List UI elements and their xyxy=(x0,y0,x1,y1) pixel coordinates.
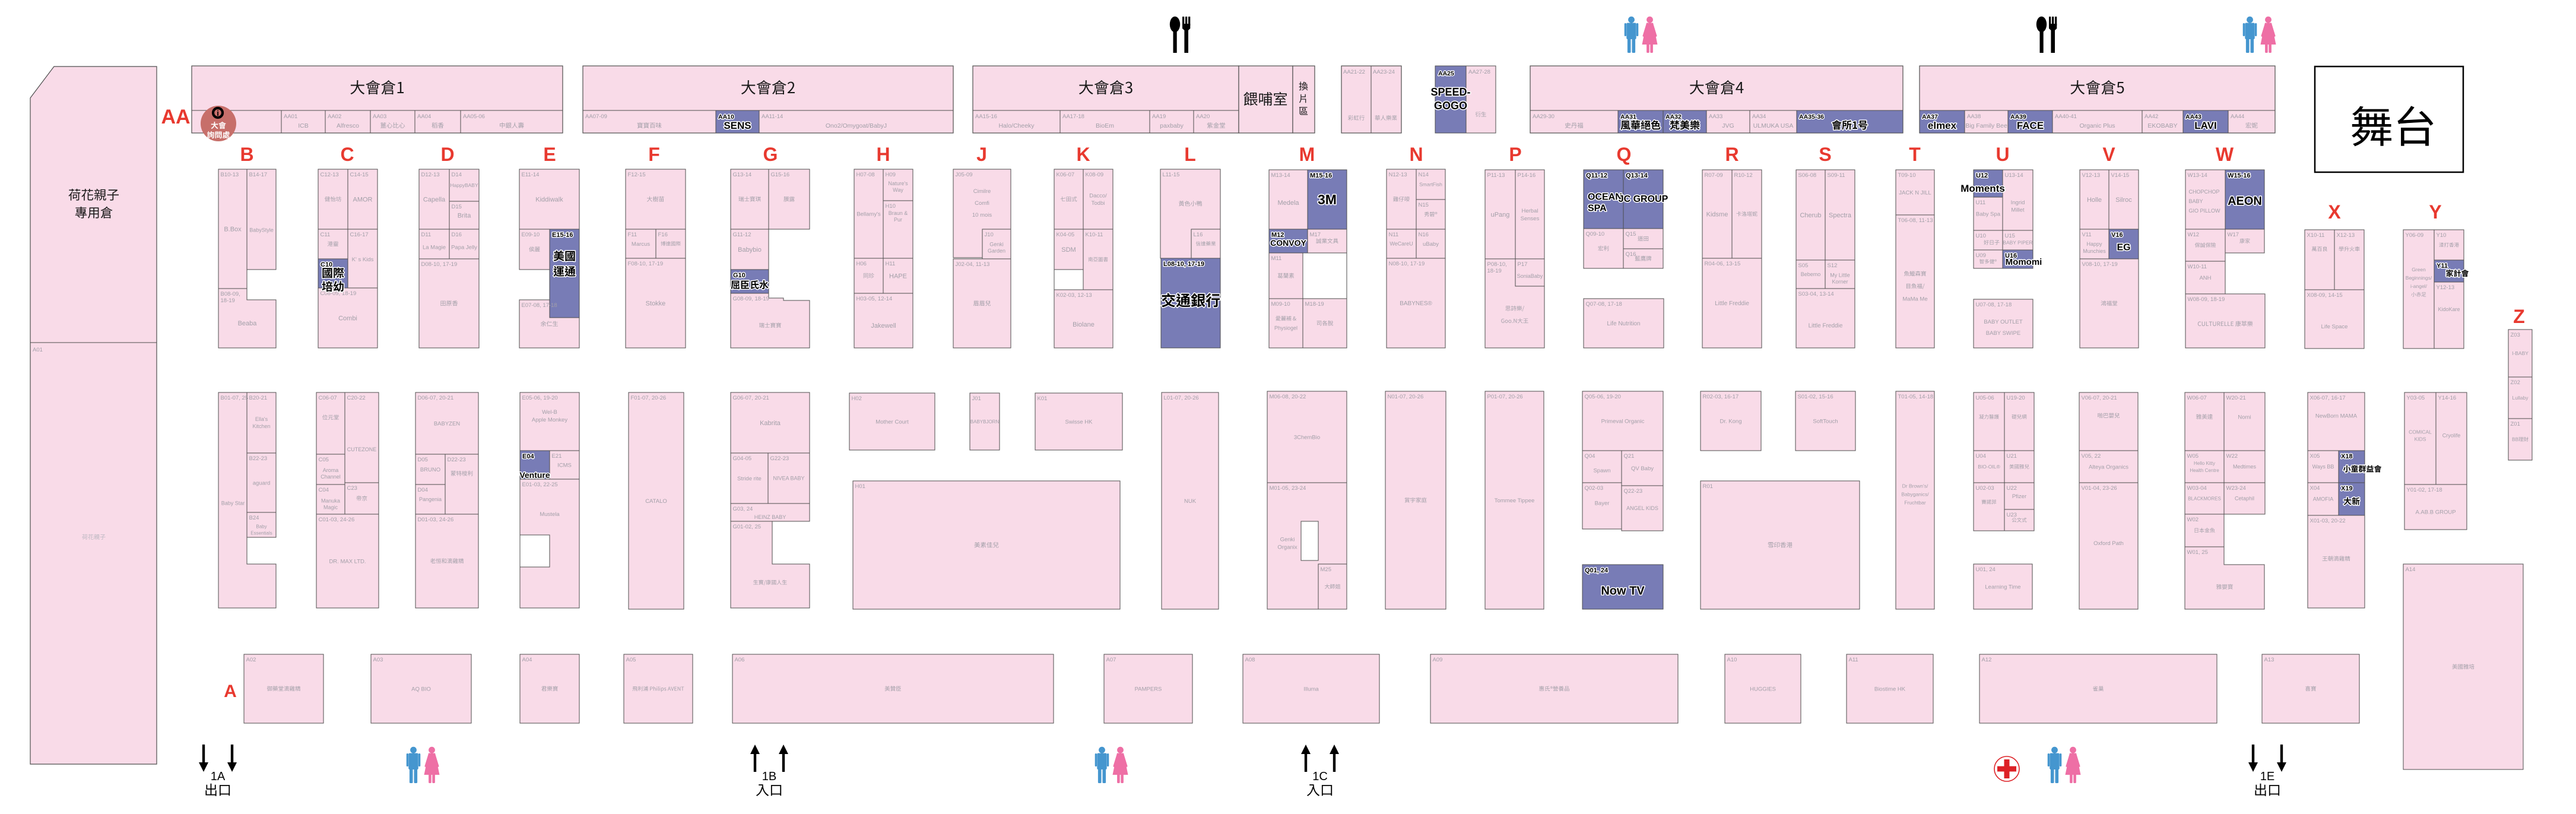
svg-text:18-19: 18-19 xyxy=(221,297,235,304)
svg-text:U: U xyxy=(1996,144,2009,165)
svg-text:Pfizer: Pfizer xyxy=(2012,493,2026,500)
svg-text:Apple Monkey: Apple Monkey xyxy=(532,417,567,423)
svg-text:W03-04: W03-04 xyxy=(2187,485,2207,492)
svg-text:R02-03, 16-17: R02-03, 16-17 xyxy=(1703,394,1739,400)
svg-text:X: X xyxy=(2328,201,2341,223)
svg-text:BioEm: BioEm xyxy=(1096,122,1114,129)
svg-text:i: i xyxy=(217,109,219,118)
svg-text:A08: A08 xyxy=(1245,657,1255,663)
svg-text:X19: X19 xyxy=(2341,485,2353,492)
svg-text:Dacco/: Dacco/ xyxy=(1089,193,1107,199)
svg-text:AMOR: AMOR xyxy=(353,196,373,203)
svg-text:BabyStyle: BabyStyle xyxy=(249,227,274,233)
svg-text:Ella's: Ella's xyxy=(255,416,268,422)
svg-text:B08-09,: B08-09, xyxy=(221,291,240,297)
svg-text:A14: A14 xyxy=(2406,566,2416,573)
svg-text:Spectra: Spectra xyxy=(1829,212,1852,219)
svg-text:S01-02, 15-16: S01-02, 15-16 xyxy=(1798,394,1833,400)
svg-text:U11: U11 xyxy=(1976,199,1986,206)
svg-text:M15-16: M15-16 xyxy=(1310,172,1332,179)
svg-text:G11-12: G11-12 xyxy=(733,232,751,238)
svg-text:AA38: AA38 xyxy=(1967,113,1981,120)
svg-text:D08-10, 17-19: D08-10, 17-19 xyxy=(421,261,458,268)
svg-text:Y12-13: Y12-13 xyxy=(2437,284,2455,291)
svg-text:T: T xyxy=(1909,144,1921,165)
svg-text:K: K xyxy=(1076,144,1090,165)
svg-text:Learning Time: Learning Time xyxy=(1985,584,2020,590)
svg-text:Spawn: Spawn xyxy=(1593,467,1610,474)
svg-text:AA32: AA32 xyxy=(1665,113,1682,121)
svg-text:Baby Star: Baby Star xyxy=(221,501,245,506)
svg-text:W06-07: W06-07 xyxy=(2187,395,2207,401)
svg-text:Alteya Organics: Alteya Organics xyxy=(2089,464,2128,470)
svg-text:A10: A10 xyxy=(1727,657,1737,663)
svg-text:Wel-B: Wel-B xyxy=(542,409,557,416)
svg-text:N12-13: N12-13 xyxy=(1389,172,1407,178)
svg-text:A: A xyxy=(224,682,237,701)
svg-text:AA34: AA34 xyxy=(1752,113,1766,120)
svg-text:Z: Z xyxy=(2513,306,2525,327)
svg-text:M06-08, 20-22: M06-08, 20-22 xyxy=(1270,394,1306,400)
svg-text:C14-15: C14-15 xyxy=(350,172,369,178)
svg-text:K06-07: K06-07 xyxy=(1057,172,1075,178)
svg-text:Life Nutrition: Life Nutrition xyxy=(1607,321,1640,327)
svg-text:EKOBABY: EKOBABY xyxy=(2147,122,2177,129)
svg-text:Q01, 24: Q01, 24 xyxy=(1585,567,1609,574)
svg-text:3M: 3M xyxy=(1318,192,1337,207)
svg-text:U12: U12 xyxy=(1976,172,1988,179)
svg-text:X06-07, 16-17: X06-07, 16-17 xyxy=(2310,395,2346,401)
svg-text:Millet: Millet xyxy=(2011,207,2025,214)
svg-text:H10: H10 xyxy=(886,203,896,210)
svg-text:Venture: Venture xyxy=(519,470,550,480)
svg-text:Biolane: Biolane xyxy=(1073,321,1095,328)
svg-text:D11: D11 xyxy=(421,232,432,238)
svg-text:Y14-16: Y14-16 xyxy=(2438,395,2457,401)
svg-text:T06-08, 11-13: T06-08, 11-13 xyxy=(1898,217,1933,224)
svg-text:BRUNO: BRUNO xyxy=(420,467,440,473)
svg-text:Fruchtbar: Fruchtbar xyxy=(1904,500,1926,506)
svg-text:A02: A02 xyxy=(246,657,256,663)
svg-text:SPEED-: SPEED- xyxy=(1430,86,1470,98)
svg-text:Aroma: Aroma xyxy=(323,467,339,473)
svg-text:X05: X05 xyxy=(2310,453,2320,460)
svg-text:Korner: Korner xyxy=(1832,279,1848,285)
svg-text:U05-06: U05-06 xyxy=(1976,395,1994,401)
svg-text:D06-07, 20-21: D06-07, 20-21 xyxy=(418,395,454,401)
svg-text:X10-11: X10-11 xyxy=(2307,232,2325,239)
svg-text:SPA: SPA xyxy=(1588,204,1607,214)
svg-text:C01-03, 24-26: C01-03, 24-26 xyxy=(319,517,355,523)
svg-text:A06: A06 xyxy=(735,657,745,663)
svg-text:M25: M25 xyxy=(1321,566,1331,573)
svg-text:Nomi: Nomi xyxy=(2238,414,2251,420)
svg-text:S06-08: S06-08 xyxy=(1798,172,1817,179)
svg-text:Q09-10: Q09-10 xyxy=(1586,231,1605,237)
svg-text:Y06-09: Y06-09 xyxy=(2406,232,2424,239)
svg-text:E15-16: E15-16 xyxy=(552,232,573,239)
svg-text:Swisse HK: Swisse HK xyxy=(1065,419,1093,425)
svg-text:Hello Kitty: Hello Kitty xyxy=(2194,461,2215,466)
svg-text:Cimilre: Cimilre xyxy=(973,188,991,195)
svg-text:1E: 1E xyxy=(2260,770,2274,783)
svg-text:F08-10, 17-19: F08-10, 17-19 xyxy=(628,261,664,267)
svg-text:E01-03, 22-25: E01-03, 22-25 xyxy=(522,482,558,488)
svg-text:Munchies: Munchies xyxy=(2083,248,2106,254)
svg-text:Combi: Combi xyxy=(338,315,357,322)
svg-text:WeCareU: WeCareU xyxy=(1389,241,1413,247)
svg-text:1C: 1C xyxy=(1312,770,1328,783)
svg-text:Medela: Medela xyxy=(1277,199,1299,207)
svg-text:FACE: FACE xyxy=(2017,120,2044,131)
svg-text:U02-03: U02-03 xyxy=(1976,485,1994,492)
svg-text:E05-06, 19-20: E05-06, 19-20 xyxy=(522,395,558,401)
svg-text:K10-11: K10-11 xyxy=(1086,232,1103,238)
svg-text:M12: M12 xyxy=(1271,232,1284,239)
svg-text:L16: L16 xyxy=(1194,232,1203,238)
svg-text:SDM: SDM xyxy=(1061,246,1076,254)
svg-text:Beaba: Beaba xyxy=(238,320,258,327)
svg-text:S12: S12 xyxy=(1828,262,1838,269)
svg-text:X01-03, 20-22: X01-03, 20-22 xyxy=(2310,518,2346,524)
svg-text:ANGEL KIDS: ANGEL KIDS xyxy=(1626,505,1658,511)
svg-text:Q05-06, 19-20: Q05-06, 19-20 xyxy=(1585,394,1621,400)
svg-text:Ingrid: Ingrid xyxy=(2011,199,2025,206)
svg-text:Q04: Q04 xyxy=(1585,453,1595,460)
svg-text:R01: R01 xyxy=(1703,483,1713,490)
svg-text:3ChemBio: 3ChemBio xyxy=(1294,434,1320,441)
svg-text:C05: C05 xyxy=(319,457,329,463)
svg-text:Senses: Senses xyxy=(1521,216,1540,222)
svg-text:Capella: Capella xyxy=(423,196,446,203)
svg-text:M17: M17 xyxy=(1310,232,1321,238)
svg-text:Stride rite: Stride rite xyxy=(737,476,762,482)
svg-text:G06-07, 20-21: G06-07, 20-21 xyxy=(733,395,769,401)
svg-text:V16: V16 xyxy=(2111,232,2123,239)
svg-text:Jakewell: Jakewell xyxy=(871,322,896,330)
svg-text:B10-13: B10-13 xyxy=(221,172,239,178)
svg-text:AA03: AA03 xyxy=(373,113,386,120)
svg-text:B14-17: B14-17 xyxy=(249,172,268,178)
svg-text:AA33: AA33 xyxy=(1709,113,1722,120)
svg-text:CONVOY: CONVOY xyxy=(1270,238,1306,248)
svg-text:W20-21: W20-21 xyxy=(2226,395,2246,401)
svg-text:Genki: Genki xyxy=(1280,536,1295,543)
svg-text:A09: A09 xyxy=(1433,657,1443,663)
svg-text:Dr. Kong: Dr. Kong xyxy=(1720,418,1742,425)
svg-text:CUTEZONE: CUTEZONE xyxy=(347,446,377,452)
svg-text:paxbaby: paxbaby xyxy=(1160,122,1184,129)
svg-text:D01-03, 24-26: D01-03, 24-26 xyxy=(418,517,454,523)
svg-text:U19-20: U19-20 xyxy=(2007,395,2025,401)
svg-text:OCEAN: OCEAN xyxy=(1588,192,1622,202)
svg-text:G04-05: G04-05 xyxy=(733,455,752,462)
svg-text:Garden: Garden xyxy=(988,248,1005,254)
svg-text:E09-10: E09-10 xyxy=(522,232,540,238)
svg-text:Kitchen: Kitchen xyxy=(252,423,270,429)
svg-text:S09-11: S09-11 xyxy=(1828,172,1845,179)
svg-text:B.Box: B.Box xyxy=(224,226,242,233)
svg-text:R04-06, 13-15: R04-06, 13-15 xyxy=(1705,261,1741,267)
svg-text:SoniaBaby: SoniaBaby xyxy=(1517,273,1543,279)
svg-text:B22-23: B22-23 xyxy=(249,455,268,462)
svg-text:Cherub: Cherub xyxy=(1800,212,1821,219)
svg-text:AQ BIO: AQ BIO xyxy=(411,686,431,692)
svg-text:AA10: AA10 xyxy=(718,113,734,121)
svg-text:BABY OUTLET: BABY OUTLET xyxy=(1984,319,2022,325)
svg-text:N16: N16 xyxy=(1419,232,1429,238)
svg-text:Ono2/Omygoat/BabyJ: Ono2/Omygoat/BabyJ xyxy=(826,122,887,129)
svg-text:1B: 1B xyxy=(762,770,776,783)
svg-text:U13-14: U13-14 xyxy=(2005,172,2023,179)
svg-text:AEON: AEON xyxy=(2228,195,2262,208)
svg-text:Halo/Cheeky: Halo/Cheeky xyxy=(998,122,1035,129)
svg-text:C10: C10 xyxy=(321,261,332,268)
svg-text:U16: U16 xyxy=(2005,252,2017,259)
svg-text:W08-09, 18-19: W08-09, 18-19 xyxy=(2188,296,2225,303)
svg-text:AA17-18: AA17-18 xyxy=(1062,113,1084,120)
svg-text:DR. MAX LTD.: DR. MAX LTD. xyxy=(329,558,366,565)
svg-text:G03, 24: G03, 24 xyxy=(733,506,753,512)
svg-text:Cetaphil: Cetaphil xyxy=(2235,496,2254,502)
svg-text:Baby: Baby xyxy=(256,524,267,529)
svg-text:elmex: elmex xyxy=(1928,120,1957,131)
svg-text:ANH: ANH xyxy=(2199,275,2211,281)
svg-text:A12: A12 xyxy=(1982,657,1992,663)
svg-text:AA31: AA31 xyxy=(1620,113,1636,121)
svg-text:Channel: Channel xyxy=(321,474,341,480)
svg-text:i-angel/: i-angel/ xyxy=(2410,283,2428,289)
svg-text:C23: C23 xyxy=(347,485,357,492)
svg-text:AA11-14: AA11-14 xyxy=(762,113,783,120)
svg-text:D04: D04 xyxy=(418,487,428,493)
svg-text:Q: Q xyxy=(1617,144,1632,165)
svg-text:A05: A05 xyxy=(626,657,636,663)
svg-text:H07-08: H07-08 xyxy=(856,172,875,178)
svg-text:Herbal: Herbal xyxy=(1522,208,1538,214)
svg-text:HUGGIES: HUGGIES xyxy=(1750,686,1776,692)
svg-text:G08-09, 18-19: G08-09, 18-19 xyxy=(733,296,769,302)
svg-text:Q11-12: Q11-12 xyxy=(1586,172,1607,179)
svg-text:Kabrita: Kabrita xyxy=(760,420,781,427)
svg-text:H: H xyxy=(876,144,890,165)
svg-text:I-BABY: I-BABY xyxy=(2512,350,2529,356)
svg-text:J05-09: J05-09 xyxy=(956,172,973,178)
svg-text:A13: A13 xyxy=(2264,657,2274,663)
svg-text:D12-13: D12-13 xyxy=(421,172,440,178)
svg-text:Dr Brown's/: Dr Brown's/ xyxy=(1902,483,1928,489)
svg-text:E21: E21 xyxy=(552,453,562,460)
svg-text:A11: A11 xyxy=(1849,657,1858,663)
svg-text:Organic Plus: Organic Plus xyxy=(2079,122,2115,129)
svg-text:J10: J10 xyxy=(985,232,994,238)
svg-text:Y: Y xyxy=(2429,201,2441,223)
svg-text:BIO-OIL®: BIO-OIL® xyxy=(1978,464,2000,470)
svg-text:BABYBJORN: BABYBJORN xyxy=(970,419,1000,425)
svg-text:U01, 24: U01, 24 xyxy=(1976,566,1996,573)
svg-text:A.AB.B GROUP: A.AB.B GROUP xyxy=(2415,509,2456,515)
svg-text:Silroc: Silroc xyxy=(2115,197,2132,204)
svg-text:P: P xyxy=(1509,144,1521,165)
svg-text:U15: U15 xyxy=(2005,233,2015,239)
svg-text:Magic: Magic xyxy=(323,505,338,511)
svg-text:AA42: AA42 xyxy=(2144,113,2158,120)
svg-text:X04: X04 xyxy=(2310,485,2320,492)
svg-text:H09: H09 xyxy=(886,172,896,178)
svg-text:BABY: BABY xyxy=(2189,198,2203,204)
svg-text:ICB: ICB xyxy=(298,122,309,129)
svg-text:K' s Kids: K' s Kids xyxy=(352,256,374,263)
svg-text:AA25: AA25 xyxy=(1438,70,1454,77)
svg-text:Now TV: Now TV xyxy=(1601,585,1645,598)
svg-text:KidoKare: KidoKare xyxy=(2438,306,2460,312)
svg-text:H01: H01 xyxy=(855,483,865,490)
svg-text:AA21-22: AA21-22 xyxy=(1343,69,1365,75)
svg-text:K01: K01 xyxy=(1038,395,1048,402)
svg-text:W22: W22 xyxy=(2226,453,2238,460)
svg-text:P01-07, 20-26: P01-07, 20-26 xyxy=(1487,394,1523,400)
svg-text:M: M xyxy=(1299,144,1315,165)
svg-text:D15: D15 xyxy=(452,204,462,210)
svg-text:C06-07: C06-07 xyxy=(319,395,337,401)
svg-text:Q16: Q16 xyxy=(1626,251,1636,258)
svg-text:Genki: Genki xyxy=(989,242,1004,248)
svg-text:BABY SWIPE: BABY SWIPE xyxy=(1986,330,2020,337)
svg-text:K04-05: K04-05 xyxy=(1057,232,1075,238)
svg-text:W15-16: W15-16 xyxy=(2228,172,2251,179)
svg-text:V12-13: V12-13 xyxy=(2082,172,2101,179)
svg-text:D14: D14 xyxy=(452,172,462,178)
svg-text:AMOFIA: AMOFIA xyxy=(2313,496,2334,502)
svg-text:N: N xyxy=(1409,144,1423,165)
svg-text:R10-12: R10-12 xyxy=(1734,172,1753,179)
svg-text:L11-15: L11-15 xyxy=(1163,172,1180,178)
svg-text:Comfi: Comfi xyxy=(975,200,989,207)
svg-text:K08-09: K08-09 xyxy=(1086,172,1104,178)
svg-text:F11: F11 xyxy=(628,232,637,238)
svg-text:B01-07, 25: B01-07, 25 xyxy=(221,395,248,401)
svg-text:A04: A04 xyxy=(522,657,532,663)
svg-text:E: E xyxy=(543,144,556,165)
svg-text:AA: AA xyxy=(161,106,190,128)
svg-text:Baby Spa: Baby Spa xyxy=(1976,211,2001,217)
svg-text:Cryolife: Cryolife xyxy=(2442,433,2461,439)
svg-text:Z02: Z02 xyxy=(2511,379,2520,386)
svg-text:Babyganics/: Babyganics/ xyxy=(1901,492,1929,498)
svg-text:BABY PIPER: BABY PIPER xyxy=(2003,240,2032,246)
svg-text:N11: N11 xyxy=(1389,232,1399,238)
svg-text:Marcus: Marcus xyxy=(632,241,650,248)
svg-text:SENS: SENS xyxy=(724,120,751,131)
svg-text:Manuka: Manuka xyxy=(321,498,340,504)
svg-text:Pangenia: Pangenia xyxy=(419,496,442,502)
svg-text:AA39: AA39 xyxy=(2010,113,2026,121)
svg-text:P14-16: P14-16 xyxy=(1518,172,1536,179)
svg-text:uPang: uPang xyxy=(1491,211,1510,218)
svg-text:D05: D05 xyxy=(418,457,428,463)
svg-text:Stokke: Stokke xyxy=(646,300,666,307)
svg-text:X18: X18 xyxy=(2341,453,2353,460)
svg-text:AA23-24: AA23-24 xyxy=(1373,69,1395,75)
svg-text:Y10: Y10 xyxy=(2437,232,2447,239)
svg-text:Little Freddie: Little Freddie xyxy=(1809,323,1843,330)
svg-text:W13-14: W13-14 xyxy=(2188,172,2207,179)
svg-text:W17: W17 xyxy=(2228,232,2239,238)
svg-text:W12: W12 xyxy=(2188,232,2200,238)
svg-text:C20-22: C20-22 xyxy=(347,395,366,401)
svg-text:Nature's: Nature's xyxy=(888,180,908,186)
svg-text:C11: C11 xyxy=(321,232,331,238)
svg-text:D16: D16 xyxy=(452,232,462,238)
svg-text:Little Freddie: Little Freddie xyxy=(1715,300,1749,307)
svg-text:J02-04, 11-13: J02-04, 11-13 xyxy=(956,261,990,268)
svg-text:A03: A03 xyxy=(373,657,383,663)
svg-text:Alfresco: Alfresco xyxy=(337,122,359,129)
svg-text:M09-10: M09-10 xyxy=(1271,301,1290,308)
svg-text:L01-07, 20-26: L01-07, 20-26 xyxy=(1164,395,1199,401)
svg-text:U07-08, 17-18: U07-08, 17-18 xyxy=(1976,302,2012,308)
svg-text:V: V xyxy=(2102,144,2115,165)
svg-text:HAPE: HAPE xyxy=(889,273,907,280)
svg-text:H06: H06 xyxy=(856,261,867,267)
svg-text:L: L xyxy=(1184,144,1196,165)
svg-text:Ways BB: Ways BB xyxy=(2312,464,2334,470)
svg-text:CHOPCHOP: CHOPCHOP xyxy=(2189,189,2220,195)
svg-text:1A: 1A xyxy=(211,770,226,783)
svg-text:C: C xyxy=(340,144,354,165)
svg-text:R: R xyxy=(1725,144,1739,165)
svg-text:V01-04, 23-26: V01-04, 23-26 xyxy=(2082,485,2117,492)
svg-text:K02-03, 12-13: K02-03, 12-13 xyxy=(1057,292,1092,299)
svg-text:HappyBABY: HappyBABY xyxy=(450,182,478,188)
svg-text:Physiogel: Physiogel xyxy=(1274,325,1297,331)
svg-text:Z03: Z03 xyxy=(2511,332,2520,338)
svg-text:My Little: My Little xyxy=(1830,273,1850,278)
svg-text:H02: H02 xyxy=(852,395,862,402)
svg-text:E04: E04 xyxy=(522,453,534,460)
svg-text:D: D xyxy=(440,144,454,165)
svg-text:S03-04, 13-14: S03-04, 13-14 xyxy=(1798,291,1834,297)
svg-text:G01-02, 25: G01-02, 25 xyxy=(733,524,762,530)
svg-text:Way: Way xyxy=(893,187,903,193)
svg-text:T01-05, 14-18: T01-05, 14-18 xyxy=(1898,394,1934,400)
svg-text:X12-13: X12-13 xyxy=(2337,232,2355,239)
svg-text:Happy: Happy xyxy=(2086,241,2102,247)
svg-text:Y11: Y11 xyxy=(2437,262,2448,270)
svg-text:F16: F16 xyxy=(658,232,668,238)
svg-text:Primeval Organic: Primeval Organic xyxy=(1601,418,1645,425)
svg-text:AA05-06: AA05-06 xyxy=(463,113,485,120)
svg-text:uBaby: uBaby xyxy=(1423,241,1439,248)
svg-text:Q02-03: Q02-03 xyxy=(1585,485,1604,492)
svg-text:Q13-14: Q13-14 xyxy=(1626,172,1648,179)
svg-text:V14-15: V14-15 xyxy=(2111,172,2130,179)
svg-text:KIDS: KIDS xyxy=(2415,436,2426,442)
svg-text:JC GROUP: JC GROUP xyxy=(1619,194,1668,204)
svg-text:QV Baby: QV Baby xyxy=(1631,465,1654,472)
svg-text:Kidsme: Kidsme xyxy=(1706,211,1728,218)
svg-text:Babybio: Babybio xyxy=(738,246,762,254)
svg-text:AA07-09: AA07-09 xyxy=(585,113,607,120)
svg-text:B24: B24 xyxy=(249,515,259,521)
svg-text:Braun &: Braun & xyxy=(889,210,908,216)
svg-text:B20-21: B20-21 xyxy=(249,395,268,401)
svg-text:Biostime HK: Biostime HK xyxy=(1874,686,1906,692)
svg-text:18-19: 18-19 xyxy=(1487,268,1502,274)
svg-text:Lullaby: Lullaby xyxy=(2512,395,2529,401)
svg-text:AA29-30: AA29-30 xyxy=(1533,113,1555,120)
svg-text:W02: W02 xyxy=(2187,517,2199,523)
